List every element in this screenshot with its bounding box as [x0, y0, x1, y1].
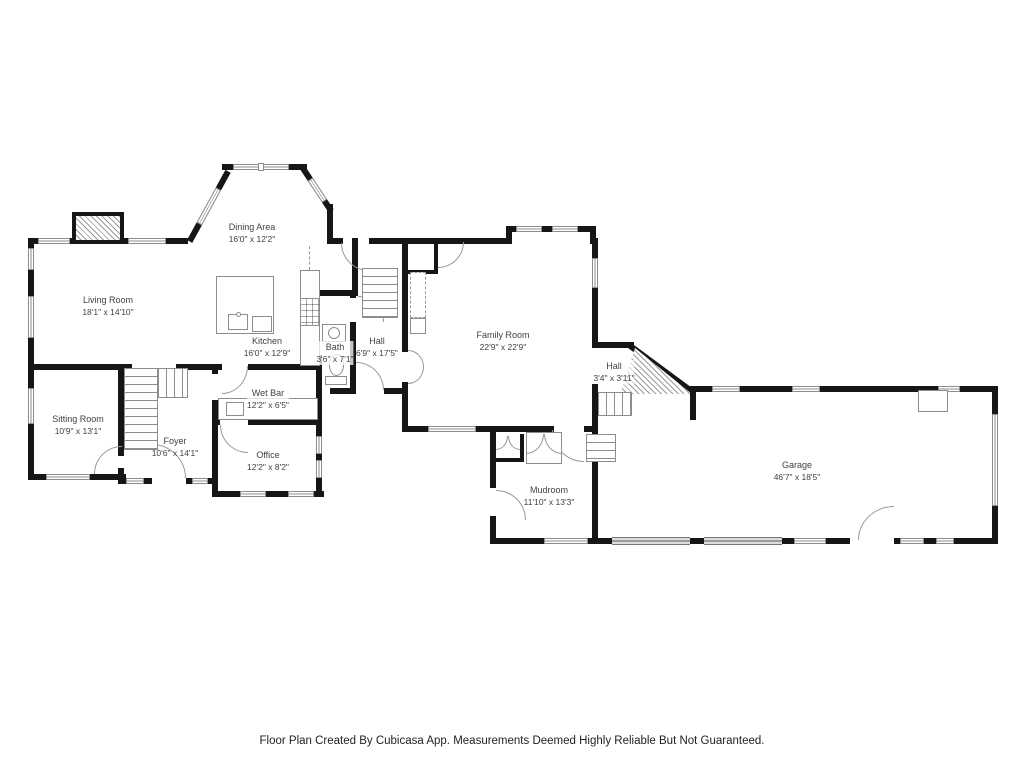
door-arc [220, 425, 248, 453]
door-arc [496, 490, 526, 520]
door-arc [858, 506, 894, 540]
bifold-door-arc [508, 436, 520, 450]
window [992, 414, 998, 506]
room-name: Hall [356, 335, 398, 347]
window [516, 226, 542, 232]
window [46, 474, 90, 480]
room-label-kitchen: Kitchen 16'0" x 12'9" [244, 335, 291, 359]
room-name: Mudroom [524, 484, 575, 496]
window [126, 478, 144, 484]
wall [592, 238, 598, 348]
window [792, 386, 820, 392]
room-dims: 3'4" x 3'11" [593, 372, 634, 384]
room-name: Family Room [476, 329, 529, 341]
fireplace [72, 212, 124, 244]
room-dims: 12'2" x 8'2" [247, 461, 289, 473]
window [316, 436, 322, 454]
room-dims: 16'0" x 12'9" [244, 347, 291, 359]
room-label-living: Living Room 18'1" x 14'10" [82, 294, 133, 318]
room-label-wetbar: Wet Bar 12'2" x 6'5" [247, 387, 289, 411]
wall [212, 364, 222, 370]
room-label-bath: Bath 3'6" x 7'1" [316, 341, 353, 365]
stove [300, 298, 320, 326]
wall [330, 388, 356, 394]
room-dims: 6'9" x 17'5" [356, 347, 398, 359]
staircase [362, 268, 398, 318]
room-label-mudroom: Mudroom 11'10" x 13'3" [524, 484, 575, 508]
door-arc [341, 243, 369, 271]
window [592, 258, 598, 288]
room-dims: 10'9" x 13'1" [52, 425, 104, 437]
door-arc [94, 446, 122, 474]
room-dims: 12'2" x 6'5" [247, 399, 289, 411]
room-name: Living Room [82, 294, 133, 306]
cooktop-block [252, 316, 272, 332]
room-name: Kitchen [244, 335, 291, 347]
garage-door [612, 537, 690, 545]
floor-plan-canvas: Dining Area 16'0" x 12'2" Living Room 18… [0, 0, 1024, 768]
room-name: Wet Bar [247, 387, 289, 399]
toilet-tank [325, 376, 347, 385]
window [900, 538, 924, 544]
room-label-sitting: Sitting Room 10'9" x 13'1" [52, 413, 104, 437]
utility-box [918, 390, 948, 412]
wall [28, 238, 34, 480]
door-arc [356, 362, 384, 390]
window [712, 386, 740, 392]
room-label-hall-small: Hall 3'4" x 3'11" [593, 360, 634, 384]
room-dims: 46'7" x 18'5" [774, 471, 821, 483]
window [936, 538, 954, 544]
room-label-hall: Hall 6'9" x 17'5" [356, 335, 398, 359]
garage-steps [598, 392, 632, 416]
room-dims: 10'6" x 14'1" [152, 447, 199, 459]
room-name: Foyer [152, 435, 199, 447]
room-label-dining: Dining Area 16'0" x 12'2" [229, 221, 276, 245]
room-label-foyer: Foyer 10'6" x 14'1" [152, 435, 199, 459]
wall [28, 364, 132, 370]
window [288, 491, 314, 497]
garage-door [704, 537, 782, 545]
window [552, 226, 578, 232]
window [197, 187, 221, 225]
window [308, 178, 327, 203]
bay-wall-left [187, 170, 231, 243]
counter-edge [309, 246, 310, 270]
window [28, 248, 34, 270]
wall [690, 392, 696, 420]
bifold-door-arc [408, 350, 424, 367]
window [240, 491, 266, 497]
window [128, 238, 166, 244]
closet-door-arc [438, 242, 464, 268]
window [192, 478, 208, 484]
window [38, 238, 70, 244]
room-name: Dining Area [229, 221, 276, 233]
wall [520, 434, 524, 462]
room-label-garage: Garage 46'7" x 18'5" [774, 459, 821, 483]
room-dims: 18'1" x 14'10" [82, 306, 133, 318]
window [428, 426, 476, 432]
room-dims: 22'9" x 22'9" [476, 341, 529, 353]
room-name: Sitting Room [52, 413, 104, 425]
disclaimer-text: Floor Plan Created By Cubicasa App. Meas… [260, 735, 765, 747]
staircase-landing [158, 368, 188, 398]
room-name: Bath [316, 341, 353, 353]
window-mullion [258, 163, 264, 171]
window [28, 388, 34, 424]
shelf [410, 318, 426, 334]
room-dims: 16'0" x 12'2" [229, 233, 276, 245]
door-arc [222, 366, 248, 394]
mudroom-steps [586, 434, 616, 462]
room-name: Office [247, 449, 289, 461]
wall [402, 238, 408, 352]
room-name: Garage [774, 459, 821, 471]
window [316, 460, 322, 478]
window [28, 296, 34, 338]
wetbar-sink [226, 402, 244, 416]
wall [592, 462, 598, 544]
window [544, 538, 588, 544]
room-dims: 3'6" x 7'1" [316, 353, 353, 365]
bifold-door-arc [496, 436, 508, 450]
room-label-family: Family Room 22'9" x 22'9" [476, 329, 529, 353]
wall [369, 238, 404, 244]
room-name: Hall [593, 360, 634, 372]
window [794, 538, 826, 544]
room-label-office: Office 12'2" x 8'2" [247, 449, 289, 473]
bath-sink-bowl [328, 327, 340, 339]
bifold-door-arc [408, 367, 424, 384]
understair-closet [410, 272, 426, 318]
room-dims: 11'10" x 13'3" [524, 496, 575, 508]
faucet [236, 312, 241, 317]
